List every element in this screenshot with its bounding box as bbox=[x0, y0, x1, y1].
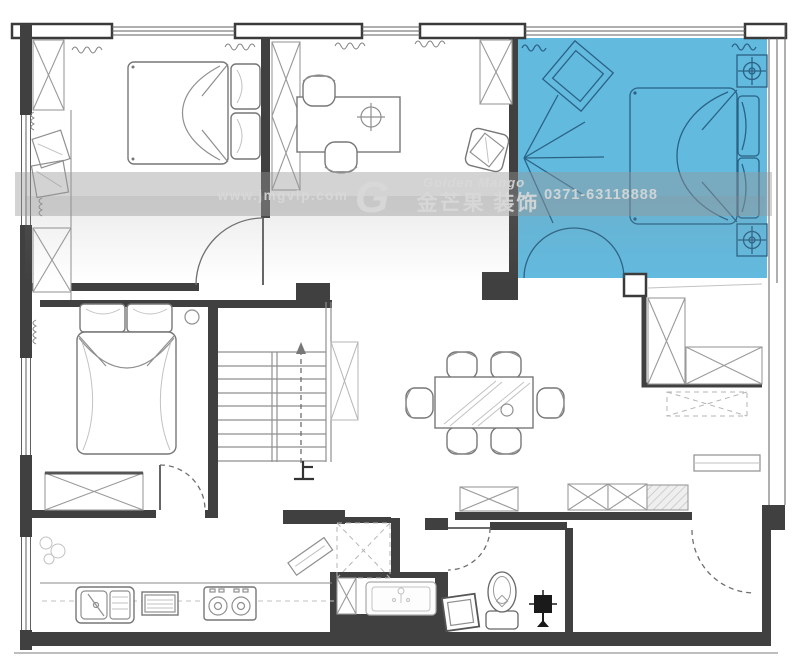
toilet-icon bbox=[486, 572, 518, 629]
curtain-icon bbox=[33, 320, 36, 344]
wardrobe-x-icon bbox=[480, 40, 512, 104]
cabinet-x-icon bbox=[568, 484, 608, 510]
chair-icon bbox=[325, 142, 357, 173]
watermark-phone: 0371-63118888 bbox=[544, 187, 658, 203]
hall-closet bbox=[648, 284, 762, 471]
wash-basin-icon bbox=[366, 582, 436, 615]
cabinet-x-icon bbox=[331, 342, 358, 420]
vanity-room bbox=[337, 578, 436, 615]
bench-icon bbox=[694, 455, 760, 471]
armchair-icon bbox=[464, 127, 510, 173]
bed-icon bbox=[77, 332, 176, 454]
bedroom-top-left bbox=[72, 44, 260, 164]
bathroom bbox=[442, 528, 557, 631]
wardrobe-x-icon bbox=[686, 347, 762, 384]
cabinet-x-icon bbox=[45, 473, 143, 510]
watermark: www.jmgvip.com G Golden Mango 金芒果 装饰 037… bbox=[15, 172, 772, 222]
watermark-logo: G bbox=[355, 173, 389, 222]
kitchen-sink-icon bbox=[76, 587, 134, 623]
study bbox=[272, 40, 512, 190]
curtain-icon bbox=[225, 44, 255, 50]
floor-plan: 上 bbox=[0, 0, 800, 658]
floor-plan-drawing: 上 bbox=[0, 0, 800, 658]
watermark-brand-en: Golden Mango bbox=[423, 175, 525, 190]
floor-stand-icon bbox=[529, 590, 557, 627]
cabinet-x-icon bbox=[667, 392, 747, 416]
washing-machine-icon bbox=[442, 594, 479, 631]
dining-area bbox=[406, 352, 564, 454]
small-appliance-icon bbox=[142, 592, 178, 615]
wardrobe-x-icon bbox=[33, 40, 64, 110]
chair-icon bbox=[303, 75, 335, 106]
bed-icon bbox=[128, 62, 228, 164]
door-swing-icon bbox=[448, 528, 490, 570]
plates-icon bbox=[40, 537, 65, 564]
shoe-cabinet-icon bbox=[647, 485, 688, 510]
bedroom-bottom-left bbox=[33, 304, 205, 510]
curtain-icon bbox=[415, 41, 445, 47]
door-swing-icon bbox=[160, 465, 205, 510]
watermark-band bbox=[15, 172, 772, 216]
curtain-icon bbox=[335, 43, 365, 49]
cabinet-x-icon bbox=[337, 578, 356, 614]
pillow-icon bbox=[231, 64, 260, 159]
pillow-icon bbox=[80, 304, 172, 332]
window-icon bbox=[769, 24, 785, 505]
entry-door-swing-icon bbox=[692, 530, 755, 593]
watermark-website: www.jmgvip.com bbox=[217, 188, 349, 203]
lamp-icon bbox=[185, 310, 199, 324]
dining-table-icon bbox=[435, 377, 533, 428]
watermark-brand-cn: 金芒果 装饰 bbox=[416, 191, 540, 215]
stairs-up-icon: 上 bbox=[218, 302, 358, 482]
cabinet-x-icon bbox=[460, 487, 518, 511]
curtain-icon bbox=[31, 112, 34, 130]
cabinet-x-icon bbox=[608, 484, 647, 510]
up-arrow-icon bbox=[296, 342, 306, 354]
wardrobe-x-icon bbox=[648, 298, 685, 384]
fridge-icon bbox=[337, 523, 390, 578]
curtain-icon bbox=[72, 47, 102, 53]
folding-board-icon bbox=[288, 538, 333, 576]
gas-stove-icon bbox=[204, 587, 256, 620]
wardrobe-x-icon bbox=[272, 42, 300, 190]
